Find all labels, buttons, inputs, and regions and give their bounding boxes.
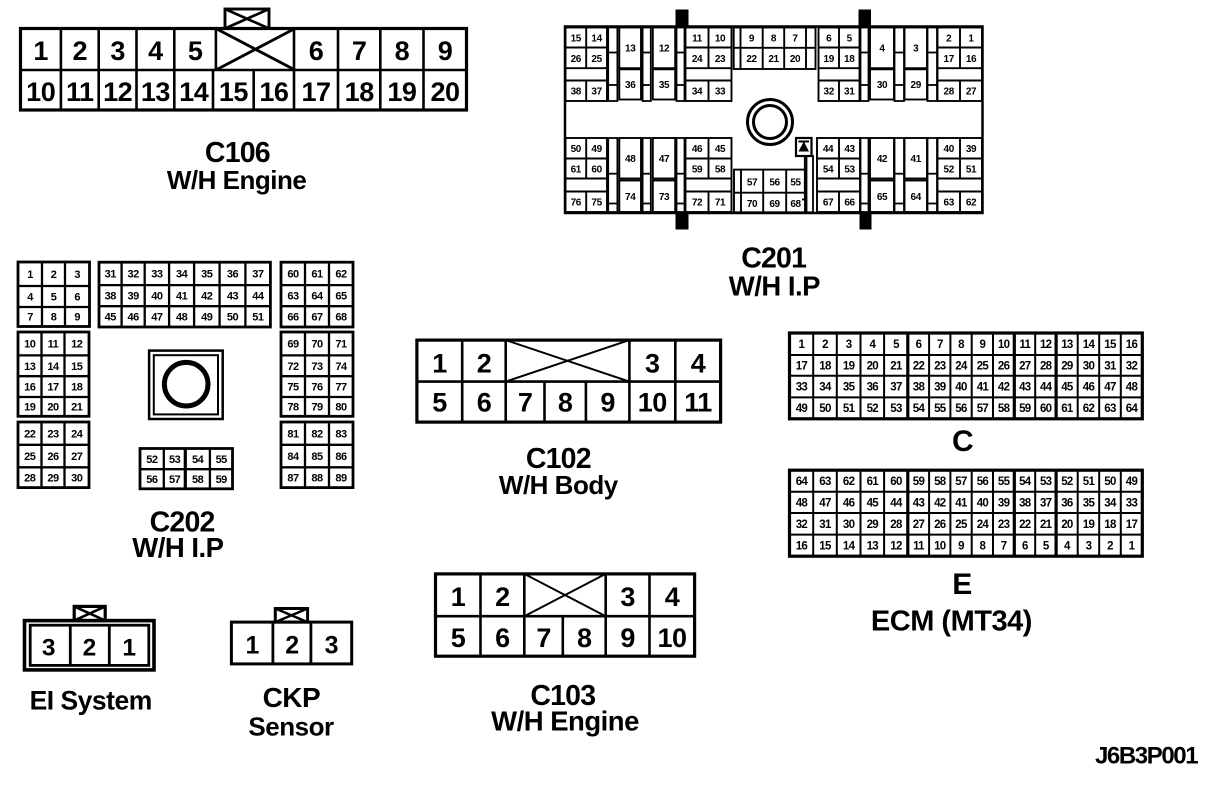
svg-text:53: 53 — [844, 164, 855, 175]
svg-text:10: 10 — [934, 541, 946, 553]
svg-text:18: 18 — [1104, 519, 1117, 531]
svg-text:73: 73 — [311, 361, 323, 373]
svg-text:61: 61 — [867, 476, 880, 488]
svg-text:57: 57 — [955, 476, 967, 488]
svg-text:2: 2 — [51, 269, 57, 281]
svg-text:29: 29 — [911, 80, 922, 91]
svg-text:72: 72 — [692, 198, 703, 209]
svg-text:26: 26 — [47, 451, 59, 463]
svg-text:22: 22 — [1019, 519, 1031, 531]
svg-text:25: 25 — [955, 519, 968, 531]
svg-text:39: 39 — [998, 498, 1010, 510]
svg-text:13: 13 — [867, 541, 879, 553]
svg-text:4: 4 — [1064, 541, 1071, 553]
svg-text:11: 11 — [692, 33, 703, 44]
svg-text:38: 38 — [913, 382, 926, 394]
svg-text:62: 62 — [966, 198, 977, 209]
svg-text:47: 47 — [659, 154, 670, 165]
svg-text:3: 3 — [325, 632, 338, 660]
svg-text:5: 5 — [1043, 541, 1050, 553]
svg-text:48: 48 — [1126, 382, 1139, 394]
svg-text:21: 21 — [1040, 519, 1053, 531]
svg-text:15: 15 — [71, 361, 83, 373]
svg-text:EI System: EI System — [30, 686, 152, 716]
svg-text:7: 7 — [536, 623, 551, 653]
svg-text:78: 78 — [287, 402, 299, 414]
svg-text:49: 49 — [796, 403, 808, 415]
svg-text:4: 4 — [148, 36, 163, 66]
svg-text:12: 12 — [659, 44, 670, 55]
svg-text:60: 60 — [287, 269, 299, 281]
svg-text:10: 10 — [24, 339, 36, 351]
svg-text:47: 47 — [151, 312, 163, 324]
svg-text:22: 22 — [24, 428, 36, 440]
svg-text:46: 46 — [843, 498, 855, 510]
svg-text:20: 20 — [867, 361, 879, 373]
svg-text:23: 23 — [715, 54, 726, 65]
svg-text:36: 36 — [227, 269, 239, 281]
svg-text:20: 20 — [790, 54, 801, 65]
svg-text:50: 50 — [571, 144, 582, 155]
svg-text:75: 75 — [591, 198, 602, 209]
svg-text:19: 19 — [843, 361, 855, 373]
svg-text:42: 42 — [998, 382, 1010, 394]
svg-text:31: 31 — [1104, 361, 1117, 373]
svg-text:38: 38 — [571, 87, 582, 98]
svg-text:18: 18 — [345, 77, 375, 107]
svg-text:43: 43 — [913, 498, 925, 510]
svg-text:71: 71 — [715, 198, 726, 209]
svg-text:46: 46 — [692, 144, 703, 155]
svg-text:38: 38 — [1019, 498, 1032, 510]
svg-text:W/H I.P: W/H I.P — [132, 532, 223, 563]
svg-text:39: 39 — [966, 144, 977, 155]
svg-text:44: 44 — [890, 498, 903, 510]
svg-text:24: 24 — [977, 519, 990, 531]
svg-text:48: 48 — [176, 312, 188, 324]
svg-text:50: 50 — [227, 312, 239, 324]
svg-text:6: 6 — [495, 623, 510, 653]
svg-text:8: 8 — [980, 541, 987, 553]
svg-text:17: 17 — [301, 77, 330, 107]
svg-text:45: 45 — [105, 312, 117, 324]
svg-text:50: 50 — [1104, 476, 1116, 488]
svg-text:60: 60 — [890, 476, 902, 488]
svg-text:59: 59 — [216, 474, 228, 486]
svg-text:21: 21 — [768, 54, 779, 65]
svg-text:32: 32 — [824, 87, 835, 98]
svg-text:42: 42 — [201, 291, 213, 303]
svg-text:46: 46 — [127, 312, 139, 324]
svg-text:75: 75 — [287, 382, 299, 394]
svg-text:62: 62 — [843, 476, 855, 488]
svg-text:59: 59 — [692, 164, 703, 175]
svg-text:2: 2 — [1107, 541, 1113, 553]
svg-text:61: 61 — [1061, 403, 1074, 415]
svg-text:32: 32 — [127, 269, 139, 281]
svg-text:3: 3 — [74, 269, 80, 281]
svg-text:7: 7 — [352, 36, 367, 66]
svg-text:10: 10 — [715, 33, 726, 44]
svg-text:34: 34 — [176, 269, 189, 281]
svg-text:42: 42 — [877, 154, 888, 165]
svg-text:63: 63 — [287, 291, 299, 303]
svg-text:52: 52 — [1061, 476, 1073, 488]
svg-text:25: 25 — [977, 361, 990, 373]
svg-text:54: 54 — [192, 454, 205, 466]
svg-text:60: 60 — [591, 164, 602, 175]
svg-text:49: 49 — [201, 312, 213, 324]
svg-text:15: 15 — [571, 33, 582, 44]
svg-text:67: 67 — [311, 312, 323, 324]
svg-text:12: 12 — [890, 541, 902, 553]
svg-text:6: 6 — [1022, 541, 1028, 553]
svg-text:58: 58 — [934, 476, 947, 488]
svg-text:34: 34 — [819, 382, 832, 394]
svg-text:23: 23 — [934, 361, 946, 373]
svg-text:35: 35 — [843, 382, 856, 394]
svg-text:40: 40 — [151, 291, 163, 303]
svg-text:70: 70 — [747, 199, 758, 210]
svg-text:33: 33 — [715, 87, 726, 98]
svg-text:18: 18 — [844, 54, 855, 65]
svg-text:5: 5 — [893, 339, 900, 351]
svg-text:17: 17 — [944, 54, 955, 65]
svg-text:2: 2 — [73, 36, 88, 66]
svg-text:88: 88 — [311, 472, 323, 484]
svg-text:30: 30 — [1083, 361, 1095, 373]
svg-text:1: 1 — [799, 339, 806, 351]
svg-text:27: 27 — [71, 451, 83, 463]
svg-text:53: 53 — [890, 403, 902, 415]
svg-text:54: 54 — [913, 403, 926, 415]
svg-text:30: 30 — [71, 472, 83, 484]
svg-text:W/H Body: W/H Body — [499, 470, 619, 500]
svg-text:64: 64 — [796, 476, 809, 488]
svg-text:ECM (MT34): ECM (MT34) — [871, 606, 1032, 638]
svg-text:10: 10 — [657, 623, 686, 653]
svg-text:24: 24 — [71, 428, 84, 440]
svg-text:31: 31 — [105, 269, 117, 281]
svg-text:1: 1 — [122, 635, 135, 662]
svg-text:28: 28 — [944, 87, 955, 98]
svg-text:77: 77 — [335, 382, 347, 394]
svg-text:2: 2 — [285, 632, 298, 660]
svg-text:36: 36 — [1061, 498, 1073, 510]
svg-text:41: 41 — [176, 291, 188, 303]
svg-text:24: 24 — [692, 54, 703, 65]
svg-text:76: 76 — [571, 198, 582, 209]
svg-text:5: 5 — [451, 623, 466, 653]
svg-text:48: 48 — [796, 498, 809, 510]
svg-text:37: 37 — [1040, 498, 1052, 510]
svg-text:12: 12 — [103, 77, 132, 107]
svg-text:2: 2 — [83, 635, 96, 662]
svg-text:50: 50 — [819, 403, 831, 415]
svg-text:44: 44 — [1040, 382, 1053, 394]
svg-text:34: 34 — [692, 87, 703, 98]
svg-text:60: 60 — [1040, 403, 1052, 415]
svg-text:1: 1 — [968, 33, 974, 44]
svg-text:2: 2 — [477, 349, 492, 379]
svg-text:4: 4 — [691, 349, 706, 379]
svg-text:74: 74 — [335, 361, 348, 373]
svg-text:56: 56 — [769, 178, 780, 189]
svg-text:36: 36 — [867, 382, 879, 394]
svg-text:9: 9 — [980, 339, 986, 351]
svg-text:19: 19 — [824, 54, 835, 65]
svg-text:47: 47 — [819, 498, 831, 510]
svg-text:87: 87 — [287, 472, 299, 484]
svg-text:65: 65 — [877, 192, 888, 203]
svg-text:20: 20 — [1061, 519, 1073, 531]
svg-text:11: 11 — [48, 339, 59, 351]
svg-text:80: 80 — [335, 402, 347, 414]
svg-text:1: 1 — [27, 269, 33, 281]
svg-text:7: 7 — [792, 33, 798, 44]
svg-text:33: 33 — [1126, 498, 1138, 510]
svg-text:27: 27 — [966, 87, 977, 98]
svg-text:71: 71 — [335, 339, 347, 351]
svg-text:3: 3 — [110, 36, 125, 66]
svg-text:45: 45 — [867, 498, 880, 510]
svg-text:7: 7 — [937, 339, 943, 351]
svg-text:53: 53 — [169, 454, 181, 466]
svg-text:18: 18 — [71, 382, 83, 394]
svg-text:30: 30 — [877, 80, 888, 91]
svg-text:66: 66 — [287, 312, 299, 324]
svg-text:64: 64 — [1126, 403, 1139, 415]
svg-text:1: 1 — [33, 36, 48, 66]
svg-text:36: 36 — [625, 80, 636, 91]
svg-text:73: 73 — [659, 192, 670, 203]
svg-text:53: 53 — [1040, 476, 1052, 488]
svg-text:51: 51 — [843, 403, 856, 415]
svg-text:9: 9 — [620, 623, 635, 653]
svg-text:63: 63 — [819, 476, 831, 488]
svg-text:25: 25 — [24, 451, 36, 463]
svg-text:4: 4 — [879, 44, 885, 55]
svg-text:38: 38 — [105, 291, 117, 303]
svg-text:89: 89 — [335, 472, 347, 484]
svg-text:85: 85 — [311, 451, 323, 463]
svg-text:9: 9 — [749, 33, 755, 44]
svg-text:48: 48 — [625, 154, 636, 165]
svg-text:13: 13 — [24, 361, 36, 373]
svg-text:8: 8 — [51, 312, 57, 324]
svg-text:5: 5 — [847, 33, 853, 44]
svg-text:47: 47 — [1104, 382, 1116, 394]
svg-text:14: 14 — [1083, 339, 1096, 351]
svg-text:17: 17 — [47, 382, 59, 394]
svg-text:31: 31 — [819, 519, 832, 531]
svg-text:J6B3P001: J6B3P001 — [1095, 742, 1198, 769]
svg-text:5: 5 — [51, 292, 57, 304]
svg-text:11: 11 — [1019, 339, 1031, 351]
svg-text:10: 10 — [638, 388, 667, 418]
svg-text:28: 28 — [24, 472, 36, 484]
svg-text:40: 40 — [977, 498, 989, 510]
svg-text:4: 4 — [869, 339, 876, 351]
svg-text:23: 23 — [47, 428, 59, 440]
svg-text:54: 54 — [823, 164, 834, 175]
svg-text:5: 5 — [432, 388, 447, 418]
svg-text:63: 63 — [1104, 403, 1116, 415]
svg-text:69: 69 — [287, 339, 299, 351]
svg-text:35: 35 — [1083, 498, 1096, 510]
svg-text:3: 3 — [1086, 541, 1092, 553]
svg-text:24: 24 — [955, 361, 968, 373]
svg-text:6: 6 — [309, 36, 324, 66]
svg-text:58: 58 — [998, 403, 1011, 415]
svg-text:37: 37 — [252, 269, 264, 281]
svg-text:45: 45 — [715, 144, 726, 155]
svg-text:8: 8 — [558, 388, 573, 418]
svg-text:44: 44 — [252, 291, 265, 303]
svg-text:29: 29 — [1061, 361, 1073, 373]
svg-text:17: 17 — [796, 361, 808, 373]
svg-text:6: 6 — [826, 33, 832, 44]
svg-text:31: 31 — [844, 87, 855, 98]
svg-text:19: 19 — [1083, 519, 1095, 531]
svg-text:57: 57 — [747, 178, 758, 189]
svg-text:54: 54 — [1019, 476, 1032, 488]
svg-text:57: 57 — [977, 403, 989, 415]
svg-text:59: 59 — [1019, 403, 1031, 415]
svg-text:49: 49 — [1126, 476, 1138, 488]
svg-text:68: 68 — [335, 312, 347, 324]
svg-text:46: 46 — [1083, 382, 1095, 394]
svg-text:22: 22 — [746, 54, 757, 65]
svg-text:1: 1 — [432, 349, 447, 379]
svg-text:33: 33 — [151, 269, 163, 281]
svg-text:19: 19 — [24, 402, 36, 414]
svg-text:14: 14 — [843, 541, 856, 553]
svg-text:33: 33 — [796, 382, 808, 394]
svg-text:70: 70 — [311, 339, 323, 351]
svg-text:64: 64 — [311, 291, 324, 303]
svg-text:63: 63 — [944, 198, 955, 209]
svg-text:3: 3 — [620, 582, 635, 612]
svg-text:39: 39 — [934, 382, 946, 394]
svg-text:72: 72 — [287, 361, 299, 373]
svg-text:C: C — [952, 425, 973, 458]
svg-text:12: 12 — [1040, 339, 1052, 351]
svg-text:21: 21 — [890, 361, 903, 373]
svg-text:13: 13 — [141, 77, 171, 107]
svg-text:8: 8 — [577, 623, 592, 653]
svg-text:41: 41 — [955, 498, 968, 510]
svg-text:61: 61 — [571, 164, 582, 175]
svg-text:16: 16 — [966, 54, 977, 65]
svg-text:19: 19 — [387, 77, 417, 107]
svg-text:E: E — [952, 568, 972, 601]
svg-text:14: 14 — [591, 33, 602, 44]
svg-text:66: 66 — [844, 198, 855, 209]
svg-text:41: 41 — [977, 382, 990, 394]
svg-text:14: 14 — [179, 77, 209, 107]
svg-text:51: 51 — [966, 164, 977, 175]
svg-text:14: 14 — [47, 361, 60, 373]
svg-text:3: 3 — [645, 349, 660, 379]
svg-text:57: 57 — [169, 474, 181, 486]
svg-text:6: 6 — [916, 339, 922, 351]
svg-text:65: 65 — [335, 291, 347, 303]
svg-text:26: 26 — [934, 519, 946, 531]
svg-text:8: 8 — [771, 33, 777, 44]
svg-text:3: 3 — [42, 635, 55, 662]
svg-text:10: 10 — [998, 339, 1010, 351]
svg-text:28: 28 — [1040, 361, 1053, 373]
svg-text:59: 59 — [913, 476, 925, 488]
svg-text:52: 52 — [944, 164, 955, 175]
svg-text:56: 56 — [146, 474, 158, 486]
svg-text:20: 20 — [430, 77, 459, 107]
svg-text:5: 5 — [188, 36, 203, 66]
svg-text:45: 45 — [1061, 382, 1074, 394]
svg-text:15: 15 — [819, 541, 832, 553]
svg-text:7: 7 — [27, 312, 33, 324]
svg-text:13: 13 — [625, 44, 636, 55]
svg-text:8: 8 — [395, 36, 410, 66]
svg-text:35: 35 — [659, 80, 670, 91]
svg-text:40: 40 — [944, 144, 955, 155]
svg-text:79: 79 — [311, 402, 323, 414]
svg-text:55: 55 — [998, 476, 1011, 488]
svg-text:20: 20 — [47, 402, 59, 414]
svg-text:27: 27 — [1019, 361, 1031, 373]
svg-text:61: 61 — [311, 269, 323, 281]
svg-text:58: 58 — [192, 474, 204, 486]
svg-text:74: 74 — [625, 192, 636, 203]
svg-text:43: 43 — [1019, 382, 1031, 394]
svg-text:2: 2 — [495, 582, 510, 612]
svg-text:62: 62 — [335, 269, 347, 281]
svg-text:55: 55 — [790, 178, 801, 189]
svg-text:18: 18 — [819, 361, 832, 373]
svg-text:29: 29 — [867, 519, 879, 531]
svg-text:55: 55 — [216, 454, 228, 466]
svg-text:67: 67 — [823, 198, 834, 209]
svg-text:9: 9 — [74, 312, 80, 324]
svg-text:55: 55 — [934, 403, 947, 415]
svg-text:10: 10 — [26, 77, 55, 107]
svg-text:9: 9 — [958, 541, 964, 553]
svg-text:12: 12 — [71, 339, 83, 351]
svg-text:2: 2 — [946, 33, 952, 44]
svg-text:68: 68 — [790, 199, 801, 210]
svg-text:17: 17 — [1126, 519, 1138, 531]
svg-text:56: 56 — [955, 403, 967, 415]
svg-text:9: 9 — [600, 388, 615, 418]
svg-text:32: 32 — [796, 519, 808, 531]
svg-text:11: 11 — [913, 541, 925, 553]
svg-text:42: 42 — [934, 498, 946, 510]
svg-text:69: 69 — [769, 199, 780, 210]
svg-text:41: 41 — [911, 154, 922, 165]
svg-text:1: 1 — [1129, 541, 1136, 553]
svg-text:16: 16 — [24, 382, 36, 394]
svg-text:37: 37 — [890, 382, 902, 394]
svg-text:23: 23 — [998, 519, 1010, 531]
svg-text:3: 3 — [913, 44, 919, 55]
svg-text:W/H I.P: W/H I.P — [729, 271, 820, 302]
svg-text:86: 86 — [335, 451, 347, 463]
svg-text:11: 11 — [66, 77, 94, 107]
svg-text:64: 64 — [911, 192, 922, 203]
svg-text:37: 37 — [591, 87, 602, 98]
svg-text:Sensor: Sensor — [248, 712, 334, 742]
